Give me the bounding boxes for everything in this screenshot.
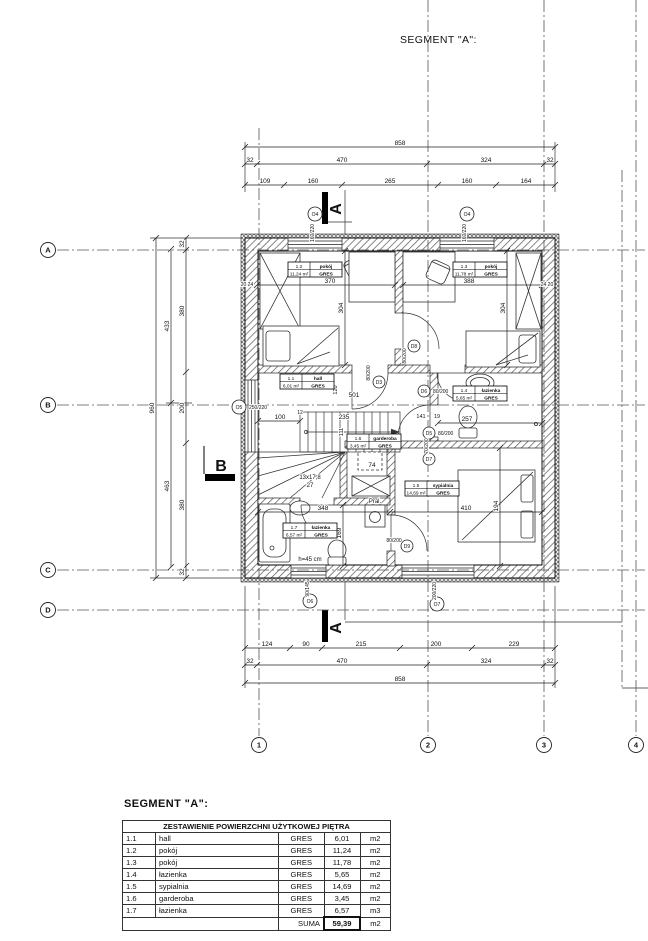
desk-room-1-2 [349,252,395,302]
dim-label: 32 [179,240,186,248]
window-marker-label: O6 [307,599,314,605]
door-marker-label: D9 [404,544,411,550]
table-cell: 1.3 [123,857,156,869]
table-cell: m2 [360,833,391,845]
table-cell: pokój [156,857,279,869]
table-cell: m3 [360,905,391,918]
room-tag-text: GRES [484,395,498,401]
room-tag-text: 3,45 m² [350,443,367,449]
dim-label: 200 [431,641,442,648]
dim-label: 470 [337,157,348,164]
axis-label-row: C [45,566,51,575]
window-marker-label: O5 [236,405,243,411]
room-tag-text: GRES [484,271,498,277]
room-tag-text: łazienka [312,525,331,531]
room-tag-text: hall [314,376,322,382]
dim-label: 32 [246,157,254,164]
dim-label: 100 [275,414,286,421]
axis-label-row: D [45,606,51,615]
room-tag-text: sypialnia [433,483,454,489]
table-cell: 11,78 [324,857,360,869]
room-tag-text: 1.5 [413,483,420,489]
window-bottom-right [402,565,474,578]
room-tag-text: GRES [311,383,325,389]
room-tag-text: 1.1 [288,376,295,382]
table-cell: 1.2 [123,845,156,857]
annotation-label: 111 [339,428,345,436]
dim-label: 388 [464,278,475,285]
window-marker-size: 90/145 [305,581,311,597]
table-cell: GRES [279,845,325,857]
axis-label-row: A [45,246,51,255]
room-tag-text: 1.3 [461,264,468,270]
dim-label: 960 [149,402,156,413]
window-marker-label: O4 [312,212,319,218]
dim-label: 194 [493,500,500,511]
annotation-label: 141 [416,414,425,420]
drawing-title-bottom: SEGMENT "A": [124,798,208,810]
dim-label: 109 [260,178,271,185]
table-cell: m2 [360,893,391,905]
wardrobe-room-1-3 [516,253,541,329]
window-marker-size: 250/220 [249,405,267,411]
dim-label: 858 [395,676,406,683]
section-letter: A [328,203,345,215]
annotation-label: h=45 cm [298,557,321,563]
room-tag: 1.3pokój11,78 m²GRES [453,262,507,277]
drawing-page: SEGMENT "A": [0,0,648,941]
room-tag-text: 1.2 [296,264,303,270]
room-tag-text: GRES [314,532,328,538]
annotation-label: 74 [368,462,376,469]
table-cell: m2 [360,869,391,881]
room-tag-text: 11,78 m² [455,271,474,277]
dim-label: 324 [481,157,492,164]
dim-label: 858 [395,140,406,147]
dim-label: 32 [246,658,254,665]
table-row: 1.6garderobaGRES3,45m2 [123,893,391,905]
bed-room-1-3 [466,331,540,367]
table-cell: garderoba [156,893,279,905]
annotation-label: 12 [297,410,303,416]
annotation-label: 27 [307,483,314,489]
table-cell: GRES [279,857,325,869]
axis-label-col: 1 [257,741,261,750]
table-cell: GRES [279,905,325,918]
annotation-label: 20 24 [241,282,254,288]
door-marker-label: D6 [421,389,428,395]
window-marker-label: O7 [434,602,441,608]
window-marker-size: 160/220 [310,224,316,242]
table-cell: 6,01 [324,833,360,845]
table-cell: m2 [360,857,391,869]
dim-label: 370 [325,278,336,285]
room-tag: 1.6garderoba3,45 m²GRES [347,434,401,449]
dim-label: 463 [164,480,171,491]
dim-label: 380 [179,305,186,316]
room-tag-text: 6,57 m² [286,532,303,538]
table-cell: 1.1 [123,833,156,845]
door-marker-size: 80/200 [366,365,372,381]
table-cell: łazienka [156,869,279,881]
room-tag-text: pokój [485,264,498,270]
window-marker-size: 160/220 [462,224,468,242]
room-tag-text: 11,24 m² [290,271,309,277]
table-cell: 1.5 [123,881,156,893]
axis-label-col: 2 [426,741,430,750]
room-tag: 1.5sypialnia14,69 m²GRES [405,481,459,496]
room-tag-text: GRES [319,271,333,277]
room-tag-text: łazienka [482,388,501,394]
dim-label: 380 [179,499,186,510]
table-cell: hall [156,833,279,845]
section-letter: A [328,622,345,634]
door-marker-size: 80/200 [386,538,402,544]
room-tag: 1.7łazienka6,57 m²GRES [283,523,337,538]
table-row: 1.1hallGRES6,01m2 [123,833,391,845]
room-tag-text: GRES [378,443,392,449]
dim-label: 160 [308,178,319,185]
table-cell: 6,57 [324,905,360,918]
window-marker-label: O4 [464,212,471,218]
room-tag-text: 1.6 [355,436,362,442]
door-marker-label: D5 [426,431,433,437]
table-row: 1.4łazienkaGRES5,65m2 [123,869,391,881]
room-tag-text: 5,65 m² [456,395,473,401]
sum-label: SUMA [279,917,325,930]
door-marker-size: 70/200 [424,438,430,454]
table-cell: 1.7 [123,905,156,918]
dim-label: 32 [546,157,554,164]
sum-value: 59,39 [324,917,360,930]
table-cell: 1.4 [123,869,156,881]
annotation-label: 13x17,8 [299,475,321,481]
table-cell: GRES [279,869,325,881]
table-cell: 14,69 [324,881,360,893]
table-row: 1.3pokójGRES11,78m2 [123,857,391,869]
table-cell: 5,65 [324,869,360,881]
table-cell: m2 [360,881,391,893]
table-cell: sypialnia [156,881,279,893]
dim-label: 324 [481,658,492,665]
door-marker-label: D7 [426,457,433,463]
axis-label-col: 3 [542,741,546,750]
table-cell: 11,24 [324,845,360,857]
table-cell: m2 [360,845,391,857]
area-schedule-table: ZESTAWIENIE POWIERZCHNI UŻYTKOWEJ PIĘTRA… [122,820,391,931]
door-marker-label: D3 [376,380,383,386]
section-b-bar [205,474,235,481]
window-marker-size: 200/220 [432,582,438,600]
dim-label: 124 [262,641,273,648]
door-marker-size: 80/200 [438,431,454,437]
axis-label-row: B [45,401,51,410]
room-tag: 1.2pokój11,24 m²GRES [288,262,342,277]
table-cell: GRES [279,881,325,893]
room-tag: 1.4łazienka5,65 m²GRES [453,386,507,401]
window-left [245,380,258,452]
dim-label: 410 [461,505,472,512]
annotation-label: 19 [434,414,440,420]
wardrobe-garderoba [352,476,390,496]
annotation-label: 501 [349,392,360,399]
dim-label: 32 [546,658,554,665]
dim-label: 90 [302,641,310,648]
room-tag-text: 6,01 m² [283,383,300,389]
washing-machine [365,505,385,527]
table-row: 1.5sypialniaGRES14,69m2 [123,881,391,893]
room-tag-text: GRES [436,490,450,496]
dim-label: 160 [462,178,473,185]
dim-label: 470 [337,658,348,665]
dim-label: 265 [385,178,396,185]
table-row: 1.7łazienkaGRES6,57m3 [123,905,391,918]
door-marker-label: D8 [411,344,418,350]
table-cell: łazienka [156,905,279,918]
room-tag-text: 14,69 m² [407,490,426,496]
table-header: ZESTAWIENIE POWIERZCHNI UŻYTKOWEJ PIĘTRA [123,821,391,833]
floor-plan: ABCD123485832470324321091602651601641249… [0,0,648,790]
sum-unit: m2 [360,917,391,930]
room-tag-text: pokój [320,264,333,270]
dim-label: 348 [318,505,329,512]
dim-label: 32 [179,568,186,576]
table-sum-row: SUMA 59,39 m2 [123,917,391,930]
dim-label: 164 [521,178,532,185]
room-tag-text: 1.4 [461,388,468,394]
table-cell: 3,45 [324,893,360,905]
room-tag: 1.1hall6,01 m²GRES [280,374,334,389]
table-row: 1.2pokójGRES11,24m2 [123,845,391,857]
door-marker-size: 80/200 [433,389,449,395]
bed-room-1-2 [263,326,339,366]
dim-label: 200 [179,402,186,413]
section-letter: B [215,458,227,475]
table-cell: pokój [156,845,279,857]
window-bottom-left [291,565,326,578]
dim-label: 229 [509,641,520,648]
dim-label: 433 [164,320,171,331]
table-cell: 1.6 [123,893,156,905]
annotation-label: 235 [339,414,350,421]
table-cell: GRES [279,833,325,845]
sink-bath-1-7 [290,501,310,515]
dim-label: 215 [356,641,367,648]
annotation-label: Pral. [369,499,382,505]
door-marker-size: 80/200 [402,348,408,364]
dim-label: 304 [338,302,345,313]
table-cell: GRES [279,893,325,905]
room-tag-text: garderoba [373,436,397,442]
dim-label: 304 [500,302,507,313]
reference-lines [150,142,648,688]
dim-label: 257 [462,416,473,423]
room-tag-text: 1.7 [291,525,298,531]
annotation-label: 24 20 [541,282,554,288]
